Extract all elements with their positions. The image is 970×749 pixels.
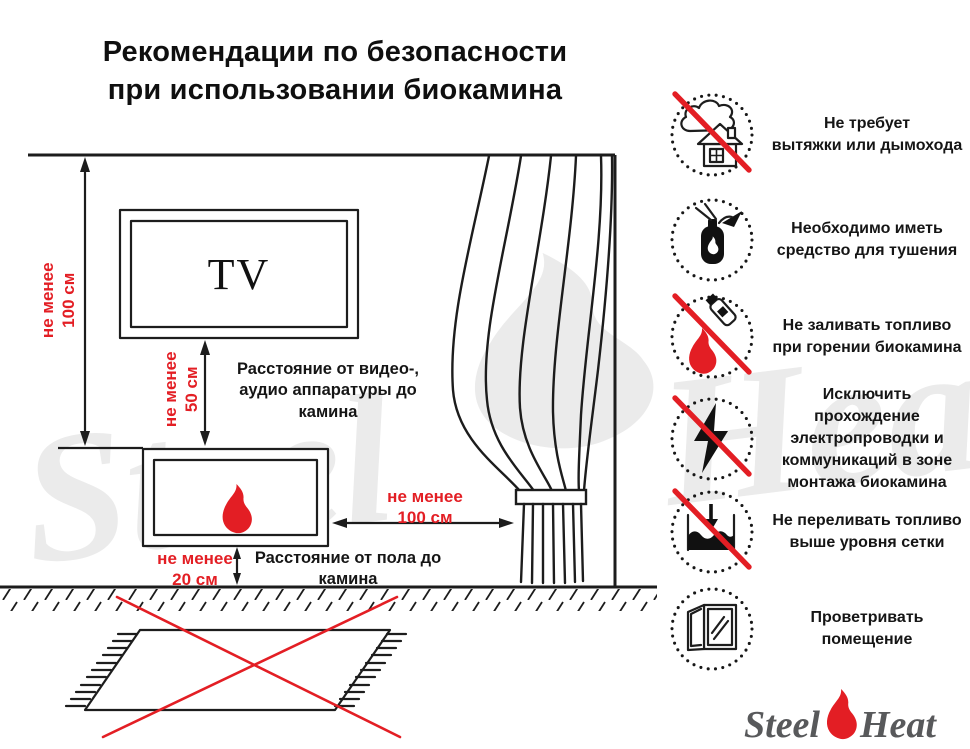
recommendation-item: Необходимо иметь средство для тушения [664,192,966,288]
note-floor-distance: Расстояние от пола до камина [248,548,448,591]
recommendation-text: Не требует вытяжки или дымохода [768,113,966,157]
rug [66,597,406,737]
recommendation-text: Не заливать топливо при горении биокамин… [768,315,966,359]
dimension-label-floor: не менее 20 см [136,548,254,591]
dimension-arrow-ceiling [80,157,90,446]
tv-box: TV [120,210,358,338]
recommendation-item: Проветривать помещение [664,581,966,677]
no-chimney-icon [664,87,760,183]
brand-logo: Steel Heat [744,688,936,744]
recommendation-item: Не требует вытяжки или дымохода [664,87,966,183]
recommendation-text: Необходимо иметь средство для тушения [768,218,966,262]
ventilate-icon [664,581,760,677]
no-overfill-icon [664,484,760,580]
note-tv-distance: Расстояние от видео-, аудио аппаратуры д… [213,359,443,423]
recommendation-text: Исключить прохождение электропроводки и … [768,384,966,494]
extinguisher-icon [664,192,760,288]
no-refill-burning-icon [664,289,760,385]
brand-flame-icon [819,688,861,742]
recommendation-item: Исключить прохождение электропроводки и … [664,384,966,494]
infographic-page: Steel Heat Рекомендации по безопасности … [0,0,970,749]
floor-hatching [0,589,657,611]
recommendation-text: Не переливать топливо выше уровня сетки [768,510,966,554]
recommendation-text: Проветривать помещение [768,607,966,651]
fireplace-box [143,449,328,546]
brand-logo-steel: Steel [744,706,820,744]
recommendation-item: Не заливать топливо при горении биокамин… [664,289,966,385]
brand-logo-heat: Heat [860,706,936,744]
tv-label: TV [208,250,271,299]
no-wiring-icon [664,391,760,487]
dimension-label-ceiling: не менее 100 см [37,240,80,360]
dimension-label-curtain: не менее 100 см [352,486,498,529]
dimension-label-tv: не менее 50 см [160,334,203,444]
recommendation-item: Не переливать топливо выше уровня сетки [664,484,966,580]
curtain-tie-band [516,490,586,504]
